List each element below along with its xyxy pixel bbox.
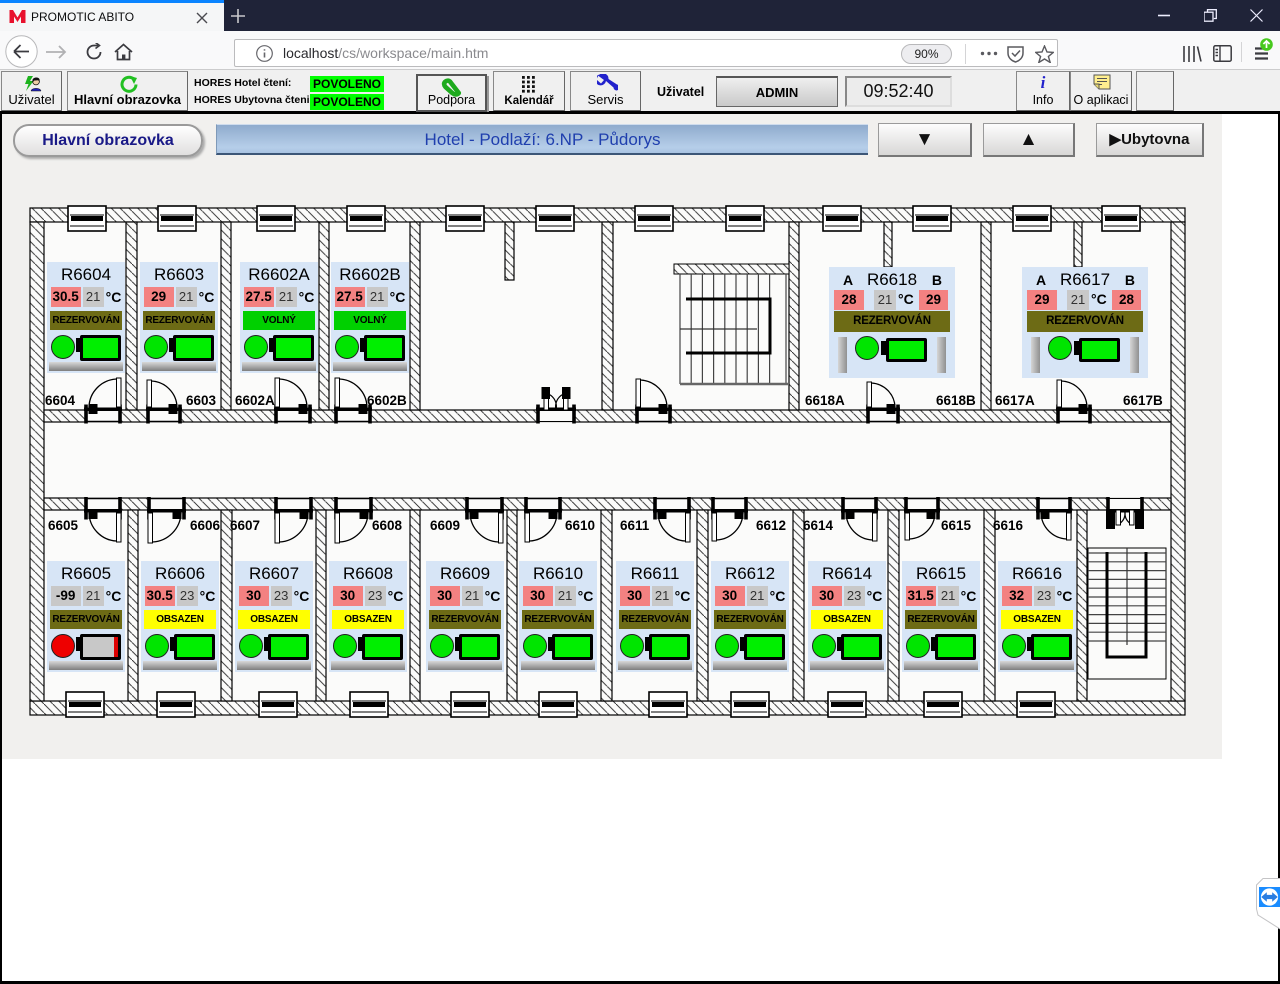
svg-text:6611: 6611 [620,518,650,533]
svg-text:6616: 6616 [993,518,1024,533]
svg-text:6606: 6606 [190,518,221,533]
svg-text:6605: 6605 [48,518,79,533]
svg-text:6614: 6614 [803,518,834,533]
svg-text:6618A: 6618A [805,393,845,408]
svg-text:6603: 6603 [186,393,217,408]
svg-text:6617B: 6617B [1123,393,1163,408]
svg-text:6617A: 6617A [995,393,1035,408]
svg-text:6612: 6612 [756,518,786,533]
svg-text:6615: 6615 [941,518,972,533]
svg-text:6602B: 6602B [367,393,407,408]
svg-text:6604: 6604 [45,393,76,408]
svg-text:6608: 6608 [372,518,403,533]
svg-text:6610: 6610 [565,518,595,533]
svg-text:6618B: 6618B [936,393,976,408]
svg-text:6602A: 6602A [235,393,275,408]
svg-text:6609: 6609 [430,518,460,533]
svg-text:6607: 6607 [230,518,260,533]
